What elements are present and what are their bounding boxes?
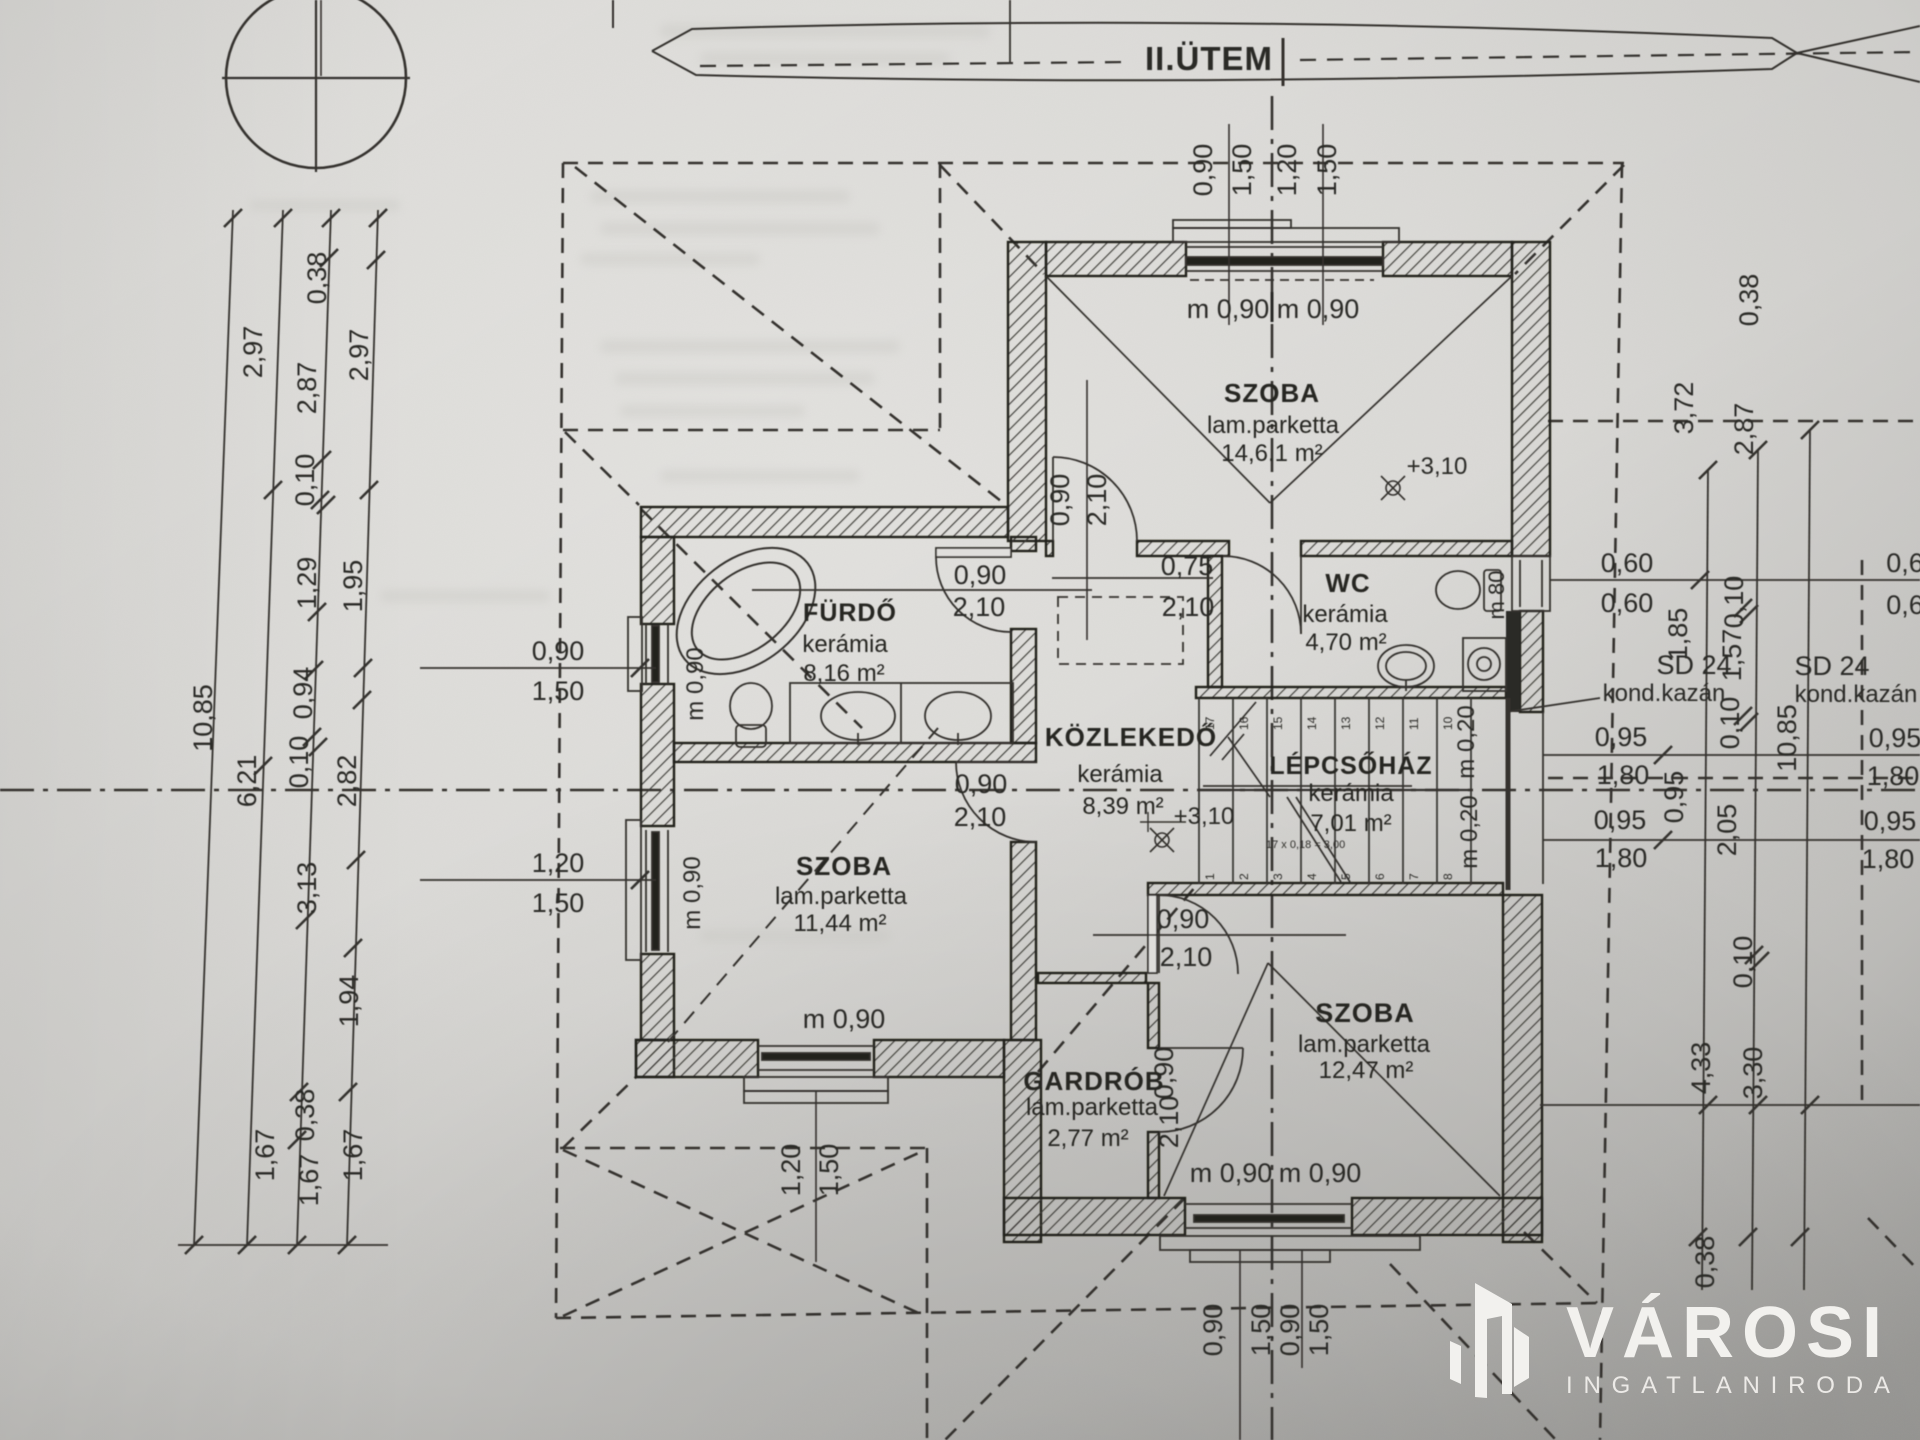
svg-text:8,16 m²: 8,16 m²	[803, 660, 884, 687]
svg-text:8,39 m²: 8,39 m²	[1082, 793, 1163, 820]
svg-text:m 0,90: m 0,90	[1277, 294, 1360, 324]
svg-text:2,77 m²: 2,77 m²	[1047, 1125, 1128, 1152]
svg-text:kerámia: kerámia	[1077, 761, 1163, 788]
svg-text:2,10: 2,10	[1154, 1096, 1184, 1149]
svg-text:17 x 0,18 = 3,00: 17 x 0,18 = 3,00	[1266, 839, 1345, 851]
svg-text:1,20: 1,20	[776, 1144, 806, 1197]
svg-text:1,50: 1,50	[1246, 1304, 1276, 1357]
svg-text:2,10: 2,10	[1162, 592, 1215, 622]
svg-text:0,38: 0,38	[1734, 274, 1764, 327]
svg-text:14,6.1 m²: 14,6.1 m²	[1221, 440, 1322, 467]
svg-text:1,50: 1,50	[1227, 144, 1257, 197]
svg-text:LÉPCSŐHÁZ: LÉPCSŐHÁZ	[1269, 751, 1432, 780]
svg-text:11,44 m²: 11,44 m²	[794, 910, 887, 937]
svg-text:15: 15	[1271, 716, 1285, 730]
svg-text:0,90: 0,90	[954, 560, 1007, 590]
svg-text:lam.parketta: lam.parketta	[775, 883, 908, 910]
svg-text:13: 13	[1339, 716, 1353, 730]
svg-text:0,95: 0,95	[1869, 723, 1920, 753]
svg-text:0,95: 0,95	[1659, 771, 1689, 824]
svg-text:FÜRDŐ: FÜRDŐ	[803, 598, 897, 627]
svg-text:m 0,20: m 0,20	[1456, 795, 1483, 868]
svg-text:2,10: 2,10	[953, 592, 1006, 622]
svg-text:m 0,90: m 0,90	[1279, 1158, 1362, 1188]
svg-text:0,10: 0,10	[284, 736, 314, 789]
svg-text:INGATLANIRODA: INGATLANIRODA	[1566, 1372, 1901, 1399]
svg-text:3,30: 3,30	[1738, 1047, 1768, 1100]
svg-text:1,50: 1,50	[1304, 1304, 1334, 1357]
svg-text:+3,10: +3,10	[1407, 453, 1468, 480]
svg-text:kond.kazán: kond.kazán	[1603, 680, 1726, 707]
svg-text:m 80: m 80	[1484, 571, 1509, 620]
svg-text:m 0,90: m 0,90	[803, 1004, 886, 1034]
svg-text:kerámia: kerámia	[1302, 601, 1388, 628]
svg-text:3,13: 3,13	[292, 862, 322, 915]
svg-text:1,20: 1,20	[1272, 144, 1302, 197]
svg-text:0,10: 0,10	[1728, 936, 1758, 989]
svg-text:0,90: 0,90	[955, 769, 1008, 799]
svg-text:1,94: 1,94	[334, 975, 364, 1028]
svg-text:0,90: 0,90	[1188, 144, 1218, 197]
svg-text:0,38: 0,38	[290, 1089, 320, 1142]
svg-text:14: 14	[1305, 716, 1319, 730]
svg-text:+3,10: +3,10	[1174, 803, 1235, 830]
svg-text:m 0,20: m 0,20	[1453, 705, 1480, 778]
svg-text:1,29: 1,29	[292, 557, 322, 610]
svg-text:16: 16	[1237, 716, 1251, 730]
svg-text:m 0,90: m 0,90	[1187, 294, 1270, 324]
svg-text:VÁROSI: VÁROSI	[1566, 1293, 1890, 1373]
svg-text:0,90: 0,90	[1198, 1304, 1228, 1357]
svg-text:5: 5	[1339, 873, 1353, 880]
svg-text:1,80: 1,80	[1595, 843, 1648, 873]
svg-text:0,95: 0,95	[1594, 805, 1647, 835]
svg-text:0,90: 0,90	[1157, 904, 1210, 934]
svg-text:3,72: 3,72	[1669, 382, 1699, 435]
svg-text:kerámia: kerámia	[802, 631, 888, 658]
svg-text:1: 1	[1203, 873, 1217, 880]
svg-text:0,75: 0,75	[1161, 551, 1214, 581]
svg-text:1,50: 1,50	[1312, 144, 1342, 197]
svg-text:m 0,90: m 0,90	[682, 647, 709, 720]
svg-text:GARDRÓB: GARDRÓB	[1023, 1066, 1164, 1096]
svg-text:7,01 m²: 7,01 m²	[1310, 810, 1391, 837]
svg-text:0,94: 0,94	[288, 667, 318, 720]
svg-text:0,10: 0,10	[1719, 576, 1749, 629]
svg-text:2,97: 2,97	[238, 326, 268, 379]
svg-text:2,10: 2,10	[954, 802, 1007, 832]
svg-text:SD 24: SD 24	[1656, 650, 1731, 680]
svg-text:3: 3	[1271, 873, 1285, 880]
svg-text:6,21: 6,21	[232, 755, 262, 808]
svg-text:7: 7	[1407, 873, 1421, 880]
svg-text:SZOBA: SZOBA	[1224, 378, 1320, 408]
svg-text:m 0,90: m 0,90	[679, 856, 706, 929]
svg-text:0,90: 0,90	[1045, 474, 1075, 527]
svg-text:KÖZLEKEDŐ: KÖZLEKEDŐ	[1045, 722, 1217, 752]
svg-text:4: 4	[1305, 873, 1319, 880]
svg-text:11: 11	[1407, 717, 1421, 730]
svg-text:SZOBA: SZOBA	[1315, 998, 1415, 1028]
svg-text:lam.parketta: lam.parketta	[1298, 1031, 1431, 1058]
svg-text:2,87: 2,87	[292, 362, 322, 415]
svg-text:2,10: 2,10	[1160, 942, 1213, 972]
svg-text:1,80: 1,80	[1867, 761, 1920, 791]
svg-text:2,10: 2,10	[1082, 474, 1112, 527]
svg-text:0,6: 0,6	[1886, 548, 1920, 578]
svg-text:2,82: 2,82	[332, 755, 362, 808]
svg-text:10,85: 10,85	[188, 684, 218, 752]
svg-text:12,47 m²: 12,47 m²	[1319, 1057, 1414, 1084]
svg-text:1,67: 1,67	[338, 1129, 368, 1182]
svg-text:0,60: 0,60	[1601, 548, 1654, 578]
svg-text:SD 24: SD 24	[1794, 651, 1869, 681]
svg-text:12: 12	[1373, 716, 1387, 730]
svg-text:0,90: 0,90	[1275, 1304, 1305, 1357]
svg-text:WC: WC	[1325, 568, 1370, 598]
svg-text:0,90: 0,90	[532, 636, 585, 666]
svg-text:4,70 m²: 4,70 m²	[1305, 629, 1386, 656]
svg-text:m 0,90: m 0,90	[1190, 1158, 1273, 1188]
svg-text:SZOBA: SZOBA	[796, 851, 892, 881]
svg-text:0,10: 0,10	[290, 454, 320, 507]
svg-text:2,05: 2,05	[1712, 804, 1742, 857]
svg-text:0,38: 0,38	[302, 252, 332, 305]
svg-text:1,80: 1,80	[1862, 844, 1915, 874]
svg-text:1,20: 1,20	[532, 848, 585, 878]
svg-text:II.ÜTEM: II.ÜTEM	[1145, 40, 1273, 77]
svg-text:0,38: 0,38	[1690, 1236, 1720, 1289]
svg-text:0,60: 0,60	[1601, 588, 1654, 618]
svg-text:1,80: 1,80	[1597, 760, 1650, 790]
svg-text:2,97: 2,97	[344, 329, 374, 382]
svg-text:1,50: 1,50	[532, 676, 585, 706]
svg-text:0,6: 0,6	[1886, 590, 1920, 620]
svg-text:kerámia: kerámia	[1308, 780, 1394, 807]
svg-text:0,95: 0,95	[1595, 722, 1648, 752]
svg-text:10,85: 10,85	[1772, 704, 1802, 772]
svg-text:2: 2	[1237, 873, 1251, 880]
svg-text:1,50: 1,50	[814, 1144, 844, 1197]
svg-text:1,67: 1,67	[250, 1129, 280, 1182]
svg-text:1,50: 1,50	[532, 888, 585, 918]
svg-text:lam.parketta: lam.parketta	[1207, 412, 1340, 439]
svg-text:kond.kazán: kond.kazán	[1795, 681, 1918, 708]
svg-text:1,95: 1,95	[338, 560, 368, 613]
svg-text:0,95: 0,95	[1864, 806, 1917, 836]
svg-text:4,33: 4,33	[1686, 1042, 1716, 1095]
svg-text:1,67: 1,67	[294, 1154, 324, 1207]
svg-text:8: 8	[1441, 873, 1455, 880]
svg-text:2,87: 2,87	[1729, 403, 1759, 456]
svg-text:6: 6	[1373, 873, 1387, 880]
svg-text:lam.parketta: lam.parketta	[1026, 1094, 1159, 1121]
